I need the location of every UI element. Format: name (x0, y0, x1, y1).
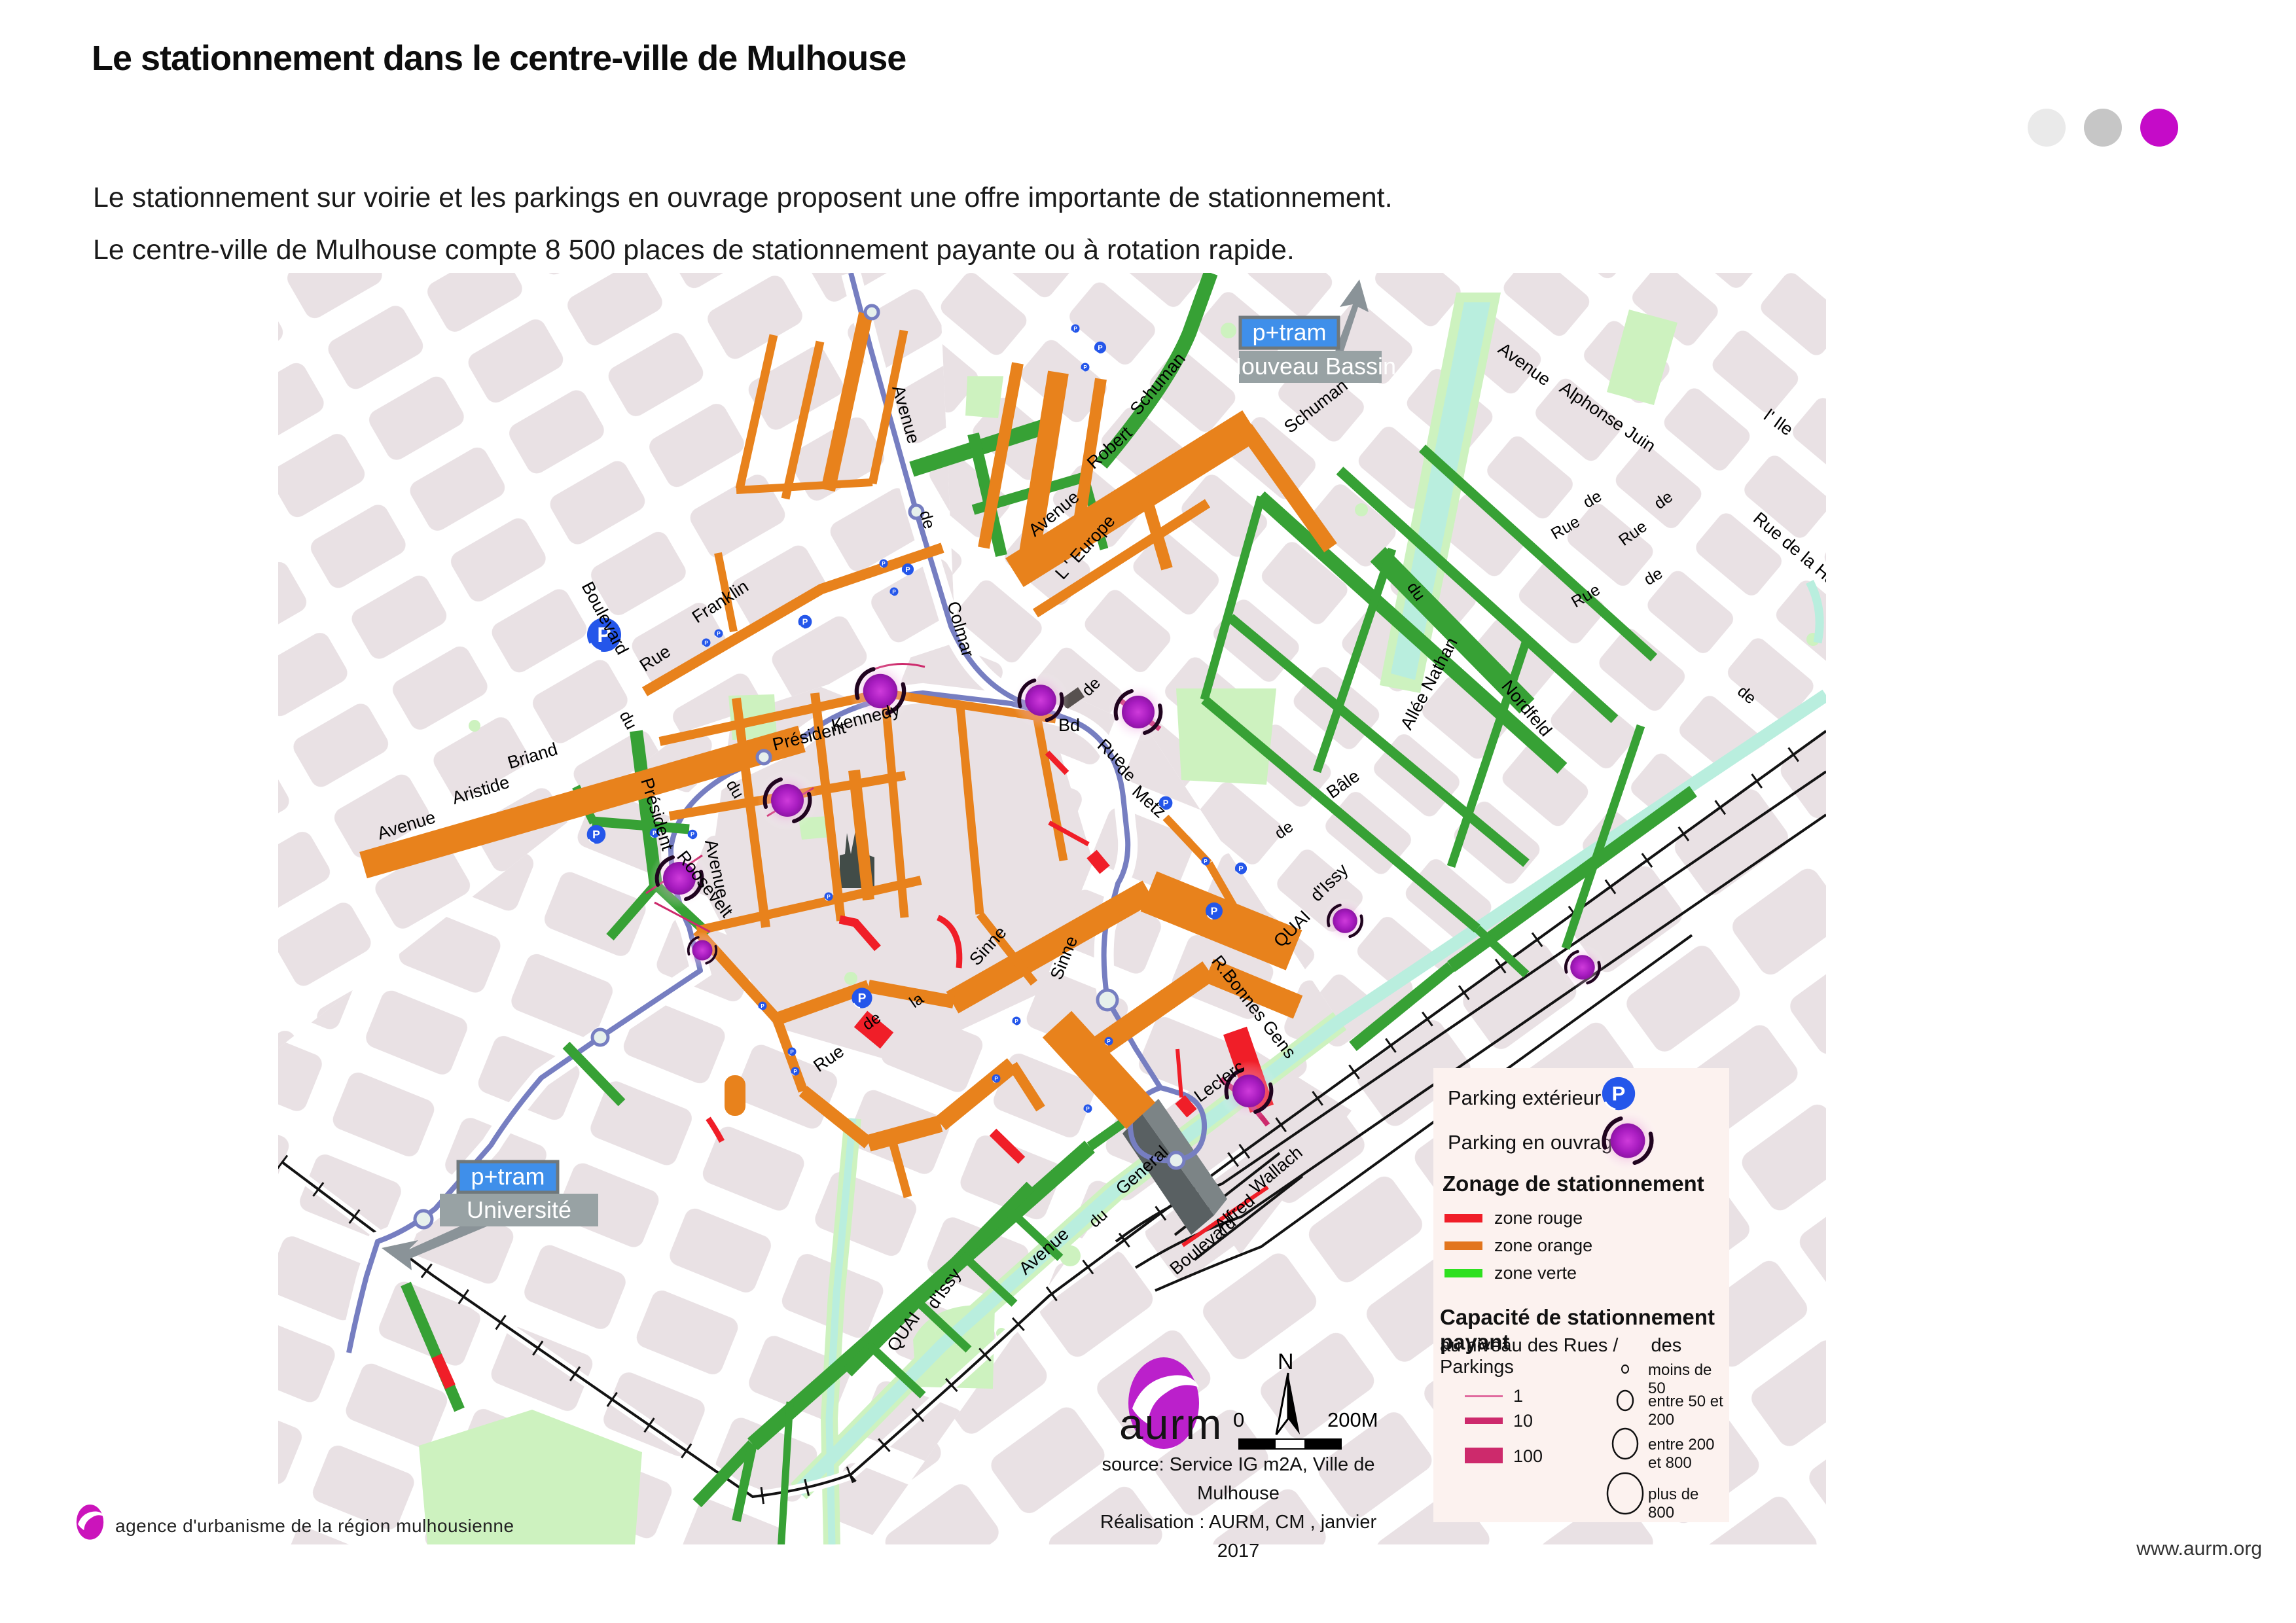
source-line-2: Réalisation : AURM, CM , janvier 2017 (1081, 1508, 1395, 1565)
dot-icon (2084, 109, 2122, 147)
north-arrow-icon (1268, 1372, 1308, 1437)
capacity-line-10 (1465, 1418, 1503, 1424)
capacity-line-100 (1465, 1448, 1503, 1463)
legend-parking-exterieur: Parking extérieur (1448, 1086, 1601, 1110)
footer-logo-icon (76, 1501, 106, 1544)
zone-orange-swatch (1444, 1241, 1482, 1250)
legend-zone-verte: zone verte (1444, 1263, 1577, 1283)
zone-rouge-swatch (1444, 1214, 1482, 1222)
page: Le stationnement dans le centre-ville de… (0, 0, 2296, 1623)
dot-icon (2140, 109, 2178, 147)
source-line-1: source: Service IG m2A, Ville de Mulhous… (1081, 1450, 1395, 1508)
capacity-1-label: 1 (1513, 1386, 1523, 1406)
station-name: Université (467, 1196, 571, 1223)
ptram-badge: p+tram (1252, 319, 1326, 346)
map-legend: Parking extérieur Parking en ouvrage Zon… (1433, 1068, 1729, 1522)
zone-verte-label: zone verte (1494, 1263, 1577, 1283)
parking-capacity-circles (1602, 1360, 1648, 1517)
legend-zone-rouge: zone rouge (1444, 1208, 1583, 1228)
pagination-dots (2028, 109, 2178, 147)
ptram-badge: p+tram (471, 1163, 545, 1190)
zone-verte-swatch (1444, 1269, 1482, 1277)
website-link[interactable]: www.aurm.org (2136, 1538, 2262, 1560)
agency-name: agence d'urbanisme de la région mulhousi… (115, 1516, 514, 1537)
page-title: Le stationnement dans le centre-ville de… (92, 38, 906, 79)
parking-capacity-label: entre 50 et 200 (1648, 1393, 1729, 1429)
zone-rouge-label: zone rouge (1494, 1208, 1583, 1228)
capacity-sub-left: au niveau des Rues / (1440, 1335, 1618, 1356)
station-name: Nouveau Bassin (1225, 353, 1396, 380)
scalebar-distance: 200M (1327, 1408, 1378, 1432)
map-source: source: Service IG m2A, Ville de Mulhous… (1081, 1450, 1395, 1565)
aurm-logo-text: aurm (1119, 1399, 1223, 1449)
parking-capacity-label: plus de 800 (1648, 1486, 1729, 1522)
zone-orange-label: zone orange (1494, 1236, 1592, 1256)
dot-icon (2028, 109, 2066, 147)
page-subtitle: Le stationnement sur voirie et les parki… (93, 171, 1393, 276)
street-label: Bd (1058, 715, 1080, 735)
legend-zone-orange: zone orange (1444, 1236, 1592, 1256)
subtitle-line-2: Le centre-ville de Mulhouse compte 8 500… (93, 224, 1393, 276)
capacity-100-label: 100 (1513, 1446, 1543, 1467)
capacity-10-label: 10 (1513, 1411, 1533, 1431)
legend-zonage-title: Zonage de stationnement (1443, 1171, 1704, 1196)
scalebar-zero: 0 (1233, 1408, 1244, 1432)
subtitle-line-1: Le stationnement sur voirie et les parki… (93, 171, 1393, 224)
parking-ouvrage-icon (1592, 1105, 1664, 1177)
capacity-line-1 (1465, 1395, 1503, 1397)
parking-capacity-label: entre 200 et 800 (1648, 1436, 1729, 1472)
scalebar (1238, 1438, 1342, 1450)
